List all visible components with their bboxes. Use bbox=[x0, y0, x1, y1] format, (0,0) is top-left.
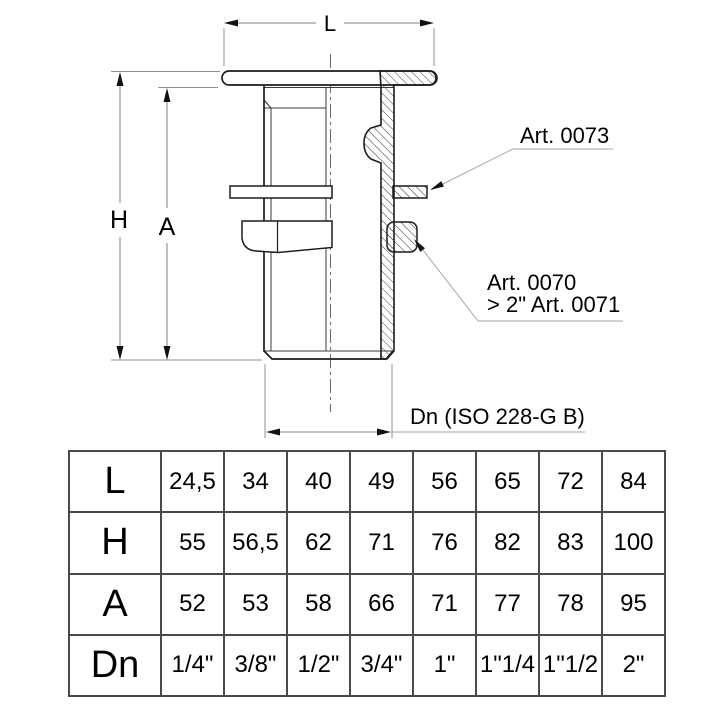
dimension-table: L 24,5 34 40 49 56 65 72 84 H 55 56,5 62… bbox=[68, 450, 666, 697]
dimension-h: H bbox=[110, 72, 262, 361]
dim-l-label: L bbox=[324, 11, 336, 36]
row-header-l: L bbox=[69, 451, 161, 512]
table-cell: 71 bbox=[350, 512, 413, 573]
arrowhead bbox=[377, 429, 391, 436]
arrowhead bbox=[164, 88, 171, 102]
table-cell: 1/2" bbox=[287, 635, 350, 696]
dim-a-label: A bbox=[159, 213, 176, 241]
table-cell: 3/4" bbox=[350, 635, 413, 696]
arrowhead bbox=[117, 72, 124, 86]
dim-h-label: H bbox=[110, 206, 128, 234]
table-cell: 66 bbox=[350, 574, 413, 635]
table-cell: 56,5 bbox=[224, 512, 287, 573]
table-cell: 84 bbox=[602, 451, 665, 512]
table-cell: 77 bbox=[476, 574, 539, 635]
table-cell: 24,5 bbox=[161, 451, 224, 512]
table-cell: 95 bbox=[602, 574, 665, 635]
table-cell: 56 bbox=[413, 451, 476, 512]
table-cell: 49 bbox=[350, 451, 413, 512]
table-row-l: L 24,5 34 40 49 56 65 72 84 bbox=[69, 451, 665, 512]
locknut bbox=[242, 221, 417, 253]
arrowhead bbox=[266, 429, 280, 436]
row-header-a: A bbox=[69, 574, 161, 635]
table-row-dn: Dn 1/4" 3/8" 1/2" 3/4" 1" 1"1/4 1"1/2 2" bbox=[69, 635, 665, 696]
callout-washer: Art. 0073 bbox=[430, 123, 613, 190]
table-cell: 58 bbox=[287, 574, 350, 635]
callout-locknut: Art. 0070 > 2" Art. 0071 bbox=[414, 239, 623, 321]
technical-drawing: L H A Dn (ISO 2 bbox=[0, 0, 719, 450]
table-cell: 1"1/4 bbox=[476, 635, 539, 696]
table-cell: 100 bbox=[602, 512, 665, 573]
thread-standard-label: Dn (ISO 228-G B) bbox=[410, 404, 585, 429]
table-cell: 82 bbox=[476, 512, 539, 573]
table-cell: 40 bbox=[287, 451, 350, 512]
row-header-dn: Dn bbox=[69, 635, 161, 696]
dimension-a: A bbox=[158, 88, 218, 361]
section-hatch-wall bbox=[364, 71, 436, 359]
table-cell: 34 bbox=[224, 451, 287, 512]
callout-washer-label: Art. 0073 bbox=[520, 123, 609, 148]
arrowhead bbox=[117, 346, 124, 360]
table-row-a: A 52 53 58 66 71 77 78 95 bbox=[69, 574, 665, 635]
table-cell: 83 bbox=[539, 512, 602, 573]
table-cell: 1" bbox=[413, 635, 476, 696]
table-cell: 53 bbox=[224, 574, 287, 635]
table-cell: 52 bbox=[161, 574, 224, 635]
table-cell: 1"1/2 bbox=[539, 635, 602, 696]
washer bbox=[230, 186, 427, 198]
table-cell: 78 bbox=[539, 574, 602, 635]
arrowhead bbox=[224, 20, 238, 27]
table-cell: 2" bbox=[602, 635, 665, 696]
table-cell: 65 bbox=[476, 451, 539, 512]
row-header-h: H bbox=[69, 512, 161, 573]
table-cell: 62 bbox=[287, 512, 350, 573]
arrowhead bbox=[420, 20, 434, 27]
dimension-l: L bbox=[224, 11, 434, 66]
table-cell: 1/4" bbox=[161, 635, 224, 696]
table-cell: 55 bbox=[161, 512, 224, 573]
table-cell: 71 bbox=[413, 574, 476, 635]
table-cell: 76 bbox=[413, 512, 476, 573]
dimension-dn: Dn (ISO 228-G B) bbox=[265, 364, 585, 438]
table-cell: 3/8" bbox=[224, 635, 287, 696]
table-cell: 72 bbox=[539, 451, 602, 512]
arrowhead bbox=[430, 181, 444, 190]
page: L H A Dn (ISO 2 bbox=[0, 0, 719, 720]
callout-locknut-label-2: > 2" Art. 0071 bbox=[487, 292, 620, 317]
table-row-h: H 55 56,5 62 71 76 82 83 100 bbox=[69, 512, 665, 573]
arrowhead bbox=[164, 346, 171, 360]
